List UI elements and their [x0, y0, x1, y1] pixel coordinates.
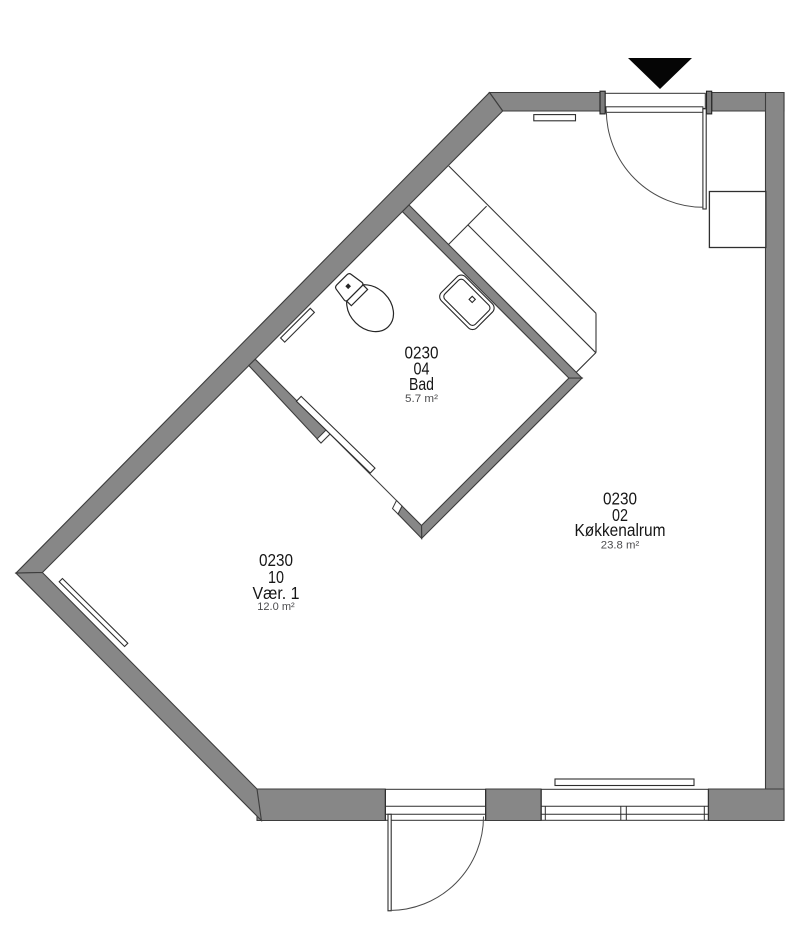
- svg-text:Køkkenalrum: Køkkenalrum: [575, 520, 666, 540]
- svg-text:Bad: Bad: [409, 374, 434, 394]
- svg-text:5.7 m²: 5.7 m²: [405, 393, 438, 405]
- svg-text:Vær. 1: Vær. 1: [253, 583, 300, 603]
- svg-text:23.8 m²: 23.8 m²: [601, 539, 640, 551]
- svg-text:12.0 m²: 12.0 m²: [257, 601, 295, 613]
